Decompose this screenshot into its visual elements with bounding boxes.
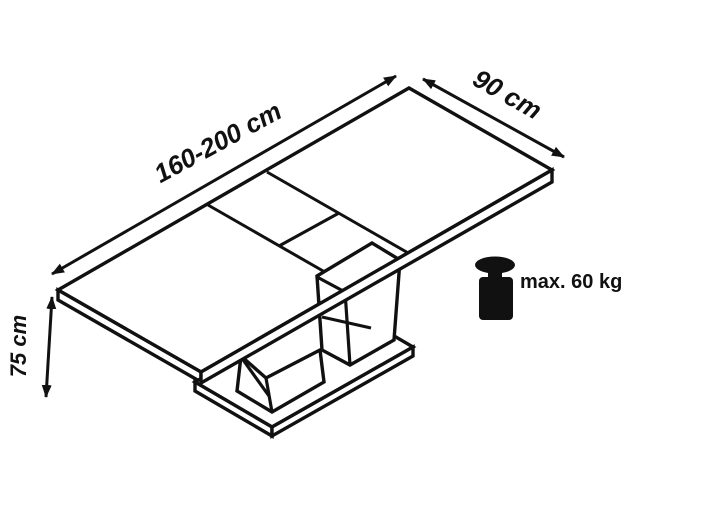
max-load-label: max. 60 kg xyxy=(520,271,622,293)
weight-icon xyxy=(475,257,515,321)
height-label: 75 cm xyxy=(6,315,31,377)
max-load: max. 60 kg xyxy=(475,257,622,321)
height-arrow xyxy=(46,297,52,397)
height-dimension: 75 cm xyxy=(6,297,52,397)
furniture-dimension-diagram: 160-200 cm 90 cm 75 cm max. 60 kg xyxy=(0,0,717,511)
table-isometric-drawing: 160-200 cm 90 cm 75 cm max. 60 kg xyxy=(0,0,717,511)
width-label: 90 cm xyxy=(468,63,547,125)
